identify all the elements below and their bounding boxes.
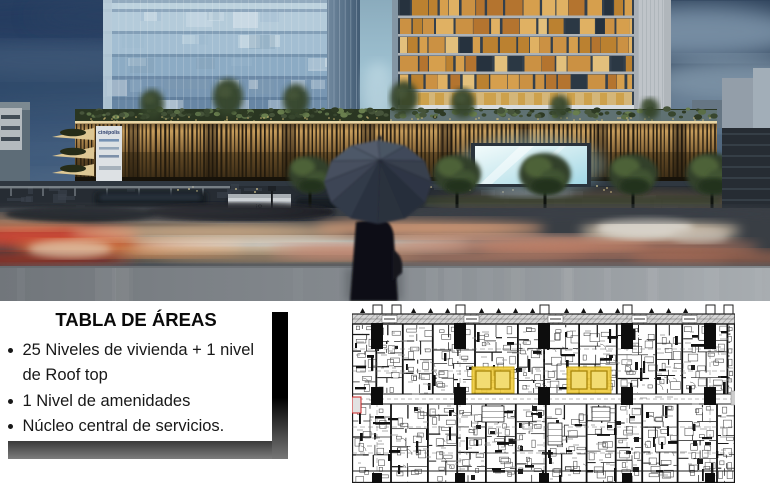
svg-text:cinépolis: cinépolis	[98, 130, 120, 136]
